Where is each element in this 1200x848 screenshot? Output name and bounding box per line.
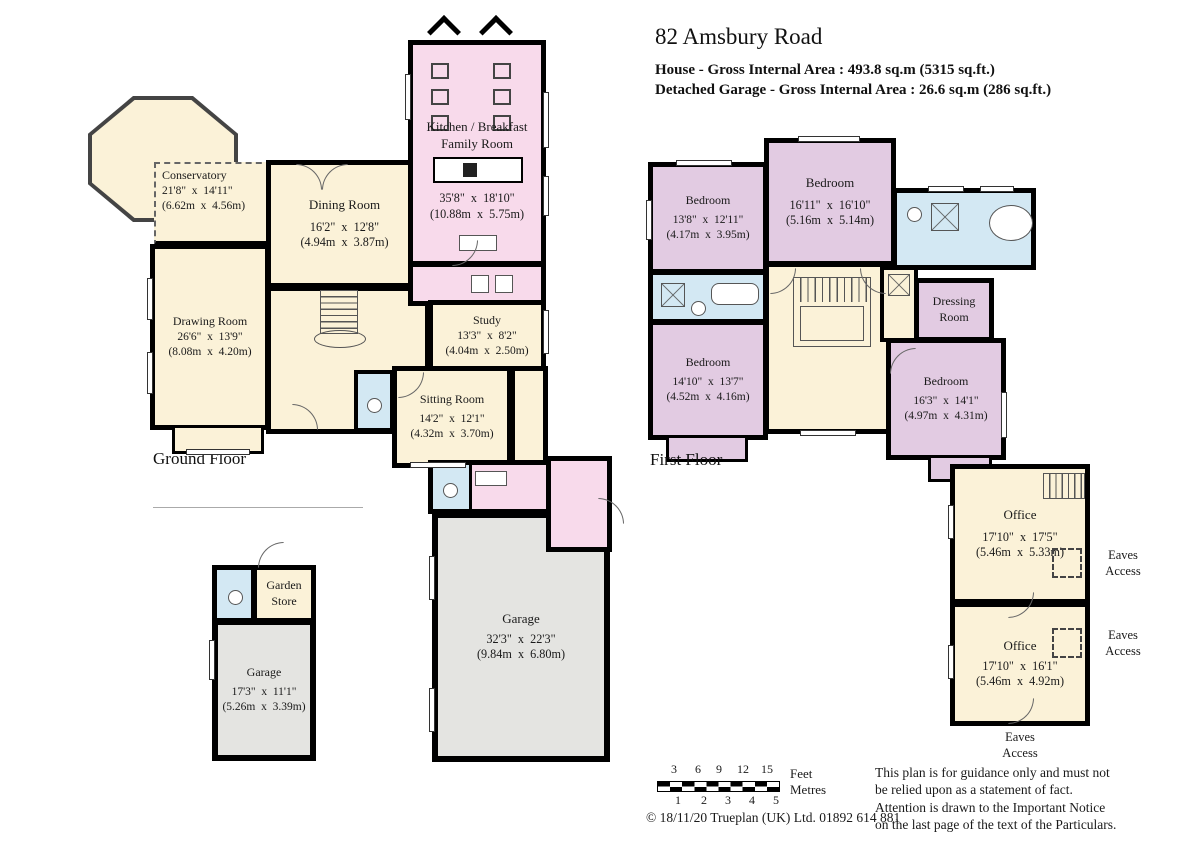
eaves-access-hatch-icon	[1052, 548, 1082, 578]
kitchen-name-line2: Family Room	[413, 136, 541, 153]
eaves-access-label: Eaves Access	[1096, 548, 1150, 579]
office2-dims-metric: (5.46m x 4.92m)	[976, 674, 1064, 690]
floorplan-canvas: 82 Amsbury Road House - Gross Internal A…	[0, 0, 1200, 848]
window-icon	[646, 200, 652, 240]
kitchen-label: Kitchen / Breakfast Family Room	[413, 119, 541, 153]
scale-feet-tick: 6	[695, 762, 701, 777]
boundary-line	[153, 507, 363, 508]
kitchen-dims: 35'8" x 18'10" (10.88m x 5.75m)	[413, 191, 541, 223]
bedroom4-dims-metric: (4.97m x 4.31m)	[904, 409, 987, 424]
window-icon	[980, 186, 1014, 192]
bathtub-icon	[711, 283, 759, 305]
drawing-dims-imperial: 26'6" x 13'9"	[168, 330, 251, 345]
window-icon	[405, 74, 411, 120]
window-icon	[543, 310, 549, 354]
study-dims-metric: (4.04m x 2.50m)	[445, 344, 528, 359]
room-kitchen: Kitchen / Breakfast Family Room 35'8" x …	[408, 40, 546, 266]
toilet-icon	[907, 207, 922, 222]
scale-feet-label: Feet	[790, 766, 812, 782]
house-area-text: House - Gross Internal Area : 493.8 sq.m…	[655, 62, 995, 79]
window-icon	[948, 645, 954, 679]
shower-icon	[888, 274, 910, 296]
dressing-name-line1: Dressing	[933, 294, 976, 310]
conservatory-name: Conservatory	[162, 168, 265, 184]
eaves-line1: Eaves	[1096, 548, 1150, 564]
bedroom2-dims-imperial: 16'11" x 16'10"	[786, 198, 874, 214]
window-icon	[1001, 392, 1007, 438]
room-garage-small: Garage 17'3" x 11'1" (5.26m x 3.39m)	[212, 619, 316, 761]
eaves-access-label: Eaves Access	[1096, 628, 1150, 659]
toilet-icon	[691, 301, 706, 316]
conservatory-dims-metric: (6.62m x 4.56m)	[162, 199, 265, 214]
kitchen-name-line1: Kitchen / Breakfast	[413, 119, 541, 136]
study-dims-imperial: 13'3" x 8'2"	[445, 329, 528, 344]
chair-icon	[431, 89, 449, 105]
garage-main-dims-imperial: 32'3" x 22'3"	[477, 632, 565, 648]
room-study: Study 13'3" x 8'2" (4.04m x 2.50m)	[428, 300, 546, 372]
room-dressing: Dressing Room	[914, 278, 994, 342]
scale-metres-label: Metres	[790, 782, 826, 798]
window-icon	[209, 640, 215, 680]
passage	[510, 366, 548, 468]
stair-treads-icon	[794, 278, 870, 302]
shower-icon	[931, 203, 959, 231]
shower-icon	[661, 283, 685, 307]
window-icon	[543, 92, 549, 148]
garage-small-name: Garage	[222, 665, 305, 681]
garage-main-dims-metric: (9.84m x 6.80m)	[477, 647, 565, 663]
room-drawing: Drawing Room 26'6" x 13'9" (8.08m x 4.20…	[150, 244, 270, 430]
eaves-line1: Eaves	[985, 730, 1055, 746]
window-icon	[147, 352, 153, 394]
toilet-icon	[367, 398, 382, 413]
bedroom3-dims-imperial: 14'10" x 13'7"	[666, 375, 749, 390]
chair-icon	[493, 89, 511, 105]
bedroom3-name: Bedroom	[666, 355, 749, 371]
room-bedroom1: Bedroom 13'8" x 12'11" (4.17m x 3.95m)	[648, 162, 768, 274]
room-bedroom2: Bedroom 16'11" x 16'10" (5.16m x 5.14m)	[764, 138, 896, 266]
store-wc	[212, 565, 256, 623]
wc-utility	[430, 462, 472, 512]
dining-dims-metric: (4.94m x 3.87m)	[300, 235, 388, 251]
room-conservatory: Conservatory 21'8" x 14'11" (6.62m x 4.5…	[154, 162, 272, 246]
sitting-name: Sitting Room	[410, 392, 493, 408]
eaves-line2: Access	[1096, 564, 1150, 580]
stairwell-void-icon	[800, 306, 864, 341]
sink-icon	[475, 471, 507, 486]
window-icon	[800, 430, 856, 436]
bathroom-left	[648, 270, 768, 324]
appliance-icon	[495, 275, 513, 293]
eaves-access-hatch-icon	[1052, 628, 1082, 658]
scale-feet-tick: 3	[671, 762, 677, 777]
garden-store-name-line1: Garden	[266, 578, 301, 594]
office1-dims-metric: (5.46m x 5.33m)	[976, 545, 1064, 561]
door-arc-icon	[598, 498, 624, 524]
dining-dims-imperial: 16'2" x 12'8"	[300, 220, 388, 236]
window-icon	[410, 462, 466, 468]
scale-metre-tick: 5	[773, 793, 779, 808]
staircase-icon	[320, 290, 358, 334]
stairwell-icon	[793, 277, 871, 347]
garage-main-name: Garage	[477, 611, 565, 628]
bedroom1-dims-metric: (4.17m x 3.95m)	[666, 228, 749, 243]
scale-feet-tick: 12	[737, 762, 749, 777]
garage-small-dims-metric: (5.26m x 3.39m)	[222, 700, 305, 715]
first-floor-label: First Floor	[650, 450, 722, 470]
bedroom2-dims-metric: (5.16m x 5.14m)	[786, 213, 874, 229]
bedroom2-name: Bedroom	[786, 175, 874, 192]
bedroom1-dims-imperial: 13'8" x 12'11"	[666, 213, 749, 228]
window-icon	[429, 688, 435, 732]
scale-metre-tick: 2	[701, 793, 707, 808]
room-bedroom3: Bedroom 14'10" x 13'7" (4.52m x 4.16m)	[648, 320, 768, 440]
office1-name: Office	[976, 507, 1064, 524]
kitchen-island-icon	[433, 157, 523, 183]
bedroom4-dims-imperial: 16'3" x 14'1"	[904, 394, 987, 409]
dressing-name-line2: Room	[933, 310, 976, 326]
window-icon	[676, 160, 732, 166]
hob-icon	[463, 163, 477, 177]
window-icon	[147, 278, 153, 320]
window-icon	[543, 176, 549, 216]
corner-bath-icon	[989, 205, 1033, 241]
toilet-icon	[443, 483, 458, 498]
scale-feet-tick: 9	[716, 762, 722, 777]
drawing-name: Drawing Room	[168, 314, 251, 330]
conservatory-dims-imperial: 21'8" x 14'11"	[162, 184, 265, 199]
office2-dims-imperial: 17'10" x 16'1"	[976, 659, 1064, 675]
study-name: Study	[445, 313, 528, 329]
eaves-line1: Eaves	[1096, 628, 1150, 644]
page-title: 82 Amsbury Road	[655, 24, 822, 50]
garage-area-text: Detached Garage - Gross Internal Area : …	[655, 82, 1051, 99]
bedroom4-name: Bedroom	[904, 374, 987, 390]
bedroom3-dims-metric: (4.52m x 4.16m)	[666, 390, 749, 405]
staircase-base-icon	[314, 330, 366, 348]
bedroom1-name: Bedroom	[666, 193, 749, 209]
window-icon	[928, 186, 964, 192]
window-icon	[798, 136, 860, 142]
drawing-dims-metric: (8.08m x 4.20m)	[168, 345, 251, 360]
sitting-dims-metric: (4.32m x 3.70m)	[410, 427, 493, 442]
copyright-text: © 18/11/20 Trueplan (UK) Ltd. 01892 614 …	[646, 810, 900, 826]
scale-feet-tick: 15	[761, 762, 773, 777]
dining-name: Dining Room	[300, 197, 388, 214]
appliance-icon	[471, 275, 489, 293]
office2-name: Office	[976, 638, 1064, 655]
kitchen-dims-metric: (10.88m x 5.75m)	[413, 207, 541, 223]
room-office1: Office 17'10" x 17'5" (5.46m x 5.33m)	[950, 464, 1090, 604]
sitting-dims-imperial: 14'2" x 12'1"	[410, 412, 493, 427]
door-arc-icon	[258, 542, 284, 568]
garden-store-name-line2: Store	[266, 594, 301, 610]
scale-metre-tick: 3	[725, 793, 731, 808]
scale-metre-tick: 4	[749, 793, 755, 808]
garage-small-dims-imperial: 17'3" x 11'1"	[222, 685, 305, 700]
window-icon	[186, 449, 250, 455]
window-icon	[429, 556, 435, 600]
eaves-line2: Access	[985, 746, 1055, 762]
disclaimer-text: This plan is for guidance only and must …	[875, 764, 1120, 833]
chair-icon	[431, 63, 449, 79]
eaves-line2: Access	[1096, 644, 1150, 660]
window-icon	[948, 505, 954, 539]
bathroom-right	[892, 188, 1036, 270]
eaves-access-label: Eaves Access	[985, 730, 1055, 761]
toilet-icon	[228, 590, 243, 605]
kitchen-dims-imperial: 35'8" x 18'10"	[413, 191, 541, 207]
room-garden-store: Garden Store	[252, 565, 316, 623]
office1-dims-imperial: 17'10" x 17'5"	[976, 530, 1064, 546]
scale-metre-tick: 1	[675, 793, 681, 808]
scale-bar	[657, 781, 780, 792]
loft-stairs-icon	[1043, 473, 1085, 499]
chair-icon	[493, 63, 511, 79]
